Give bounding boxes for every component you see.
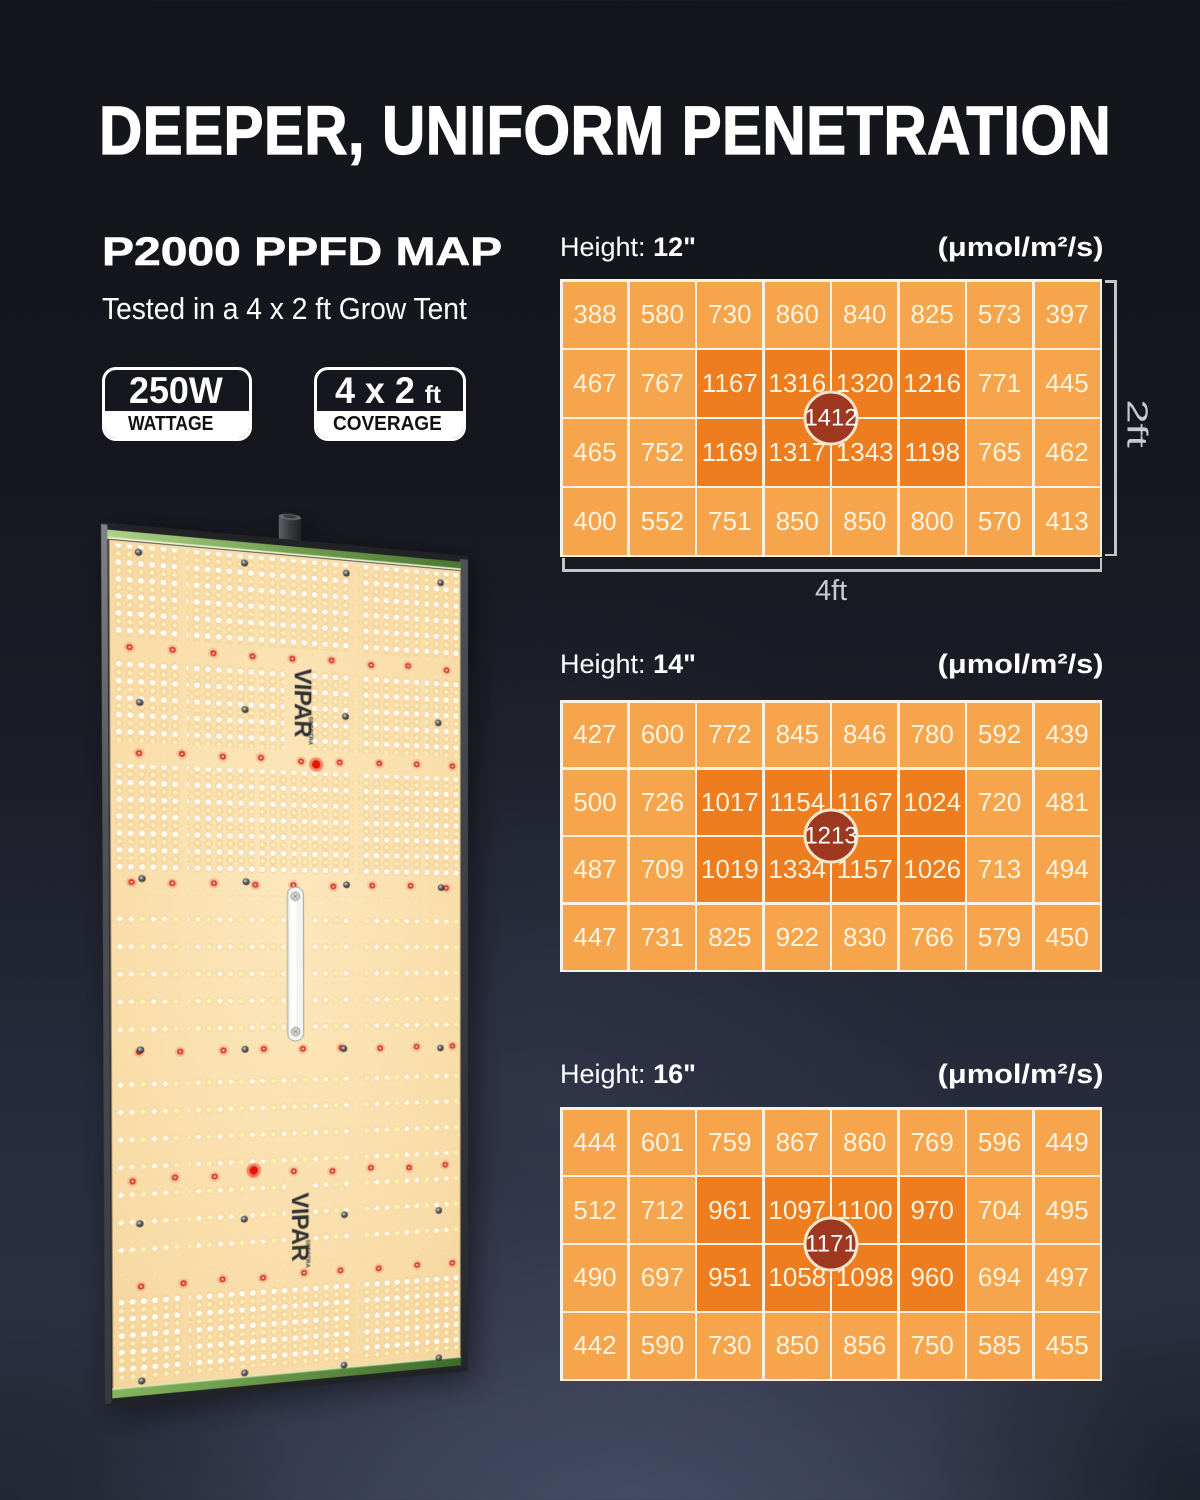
svg-text:SPECTRA: SPECTRA (304, 1239, 310, 1268)
svg-text:SPECTRA: SPECTRA (307, 716, 313, 745)
